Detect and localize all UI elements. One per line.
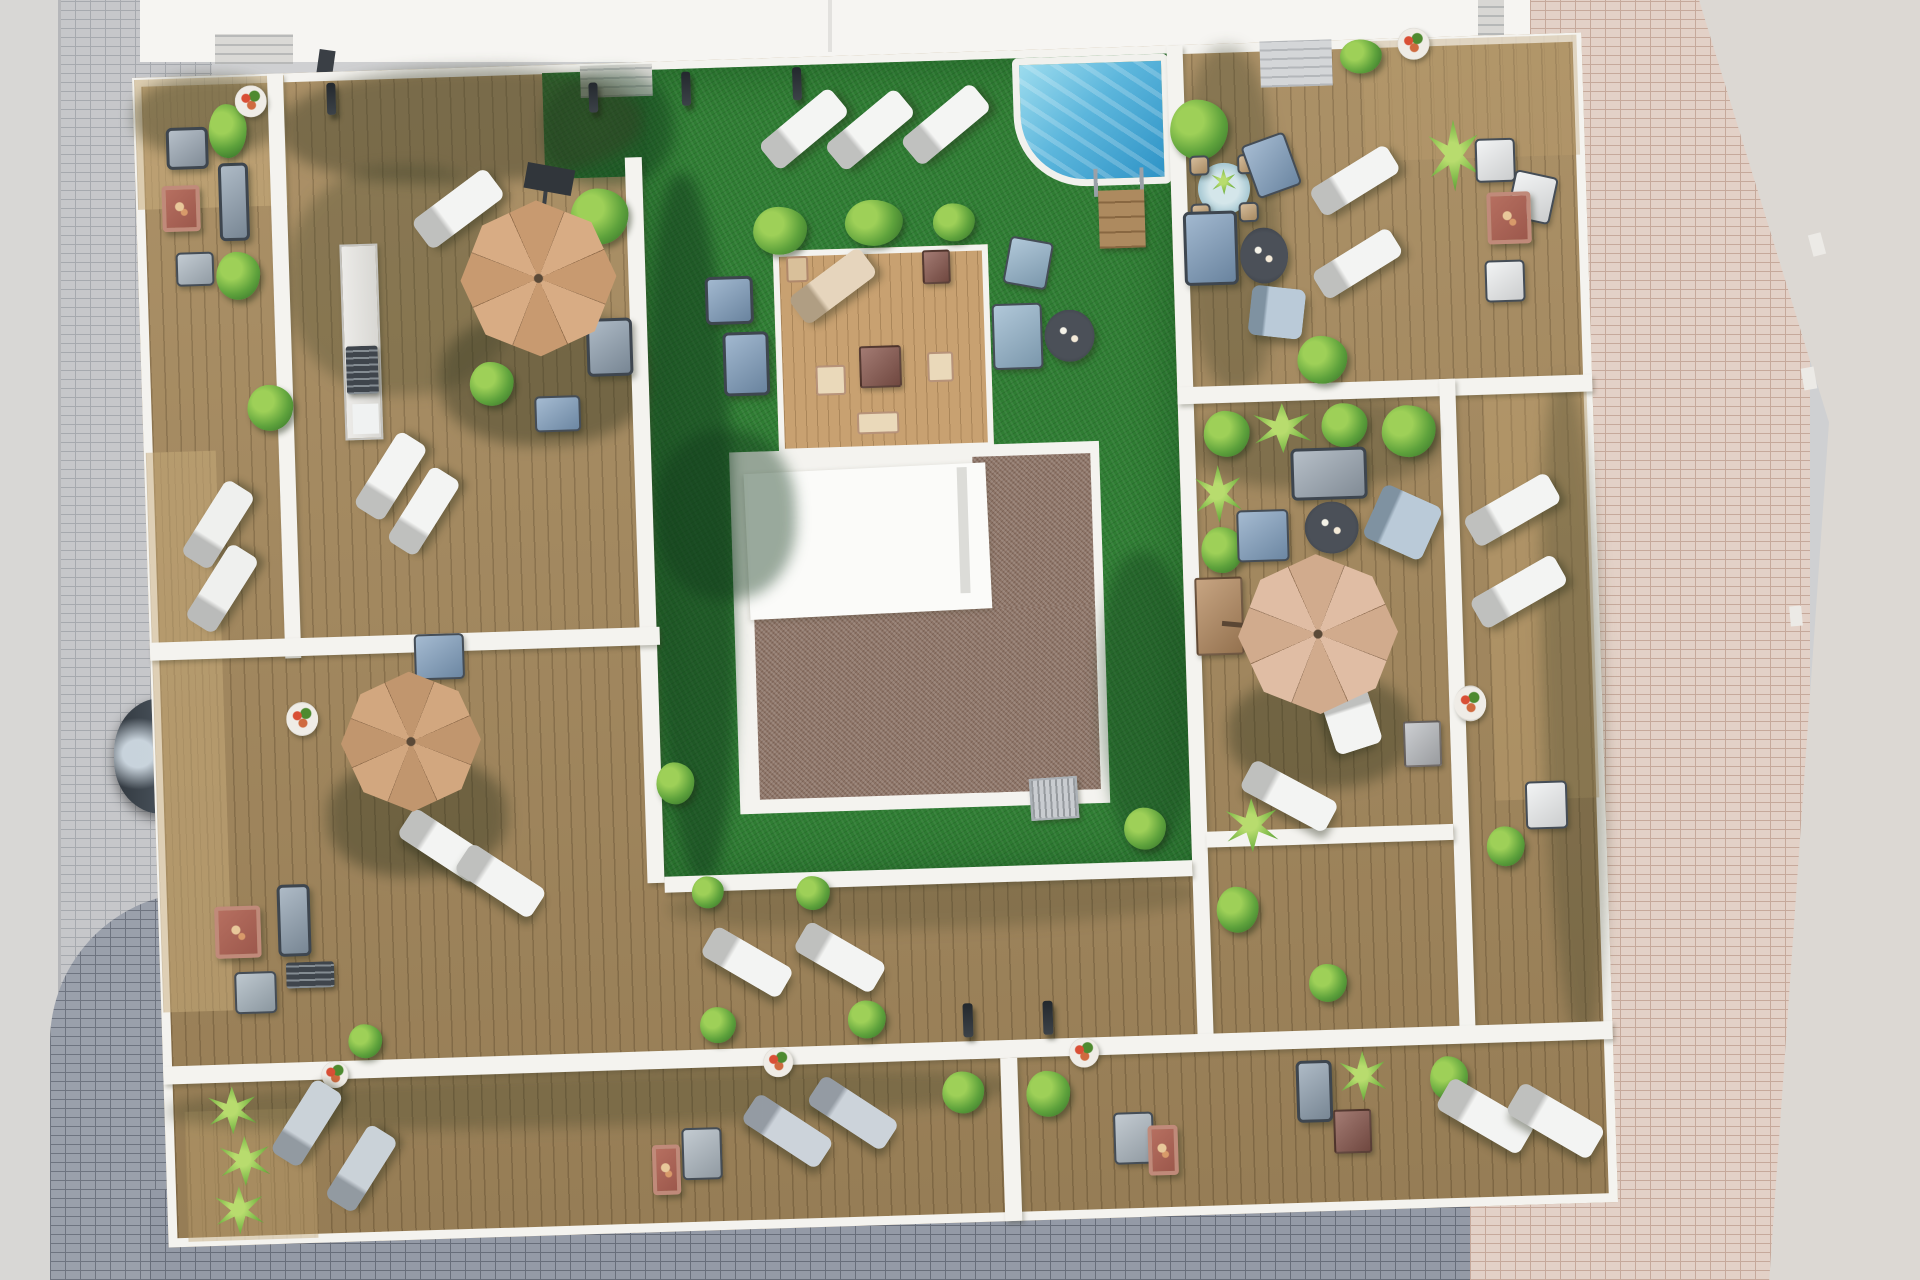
lounge-chair-lawn-1 — [1002, 235, 1054, 290]
bollard-light-lawn-1 — [681, 72, 691, 106]
sofa-nw-vertical — [218, 162, 250, 241]
roof-seam — [828, 0, 832, 52]
ac-unit-core — [1029, 776, 1080, 821]
rooftop-aerial-render — [0, 0, 1920, 1280]
fire-table-bc-left — [652, 1144, 682, 1195]
bollard-light-lawn-2 — [792, 67, 802, 100]
armchair-corner-1 — [1475, 138, 1516, 183]
planter-pergola — [922, 249, 951, 284]
building-layer — [132, 33, 1618, 1248]
sofa-rm — [1290, 446, 1368, 500]
sofa-lawn-1 — [705, 276, 754, 325]
armchair-sw — [414, 633, 465, 681]
armchair-bc-left — [681, 1127, 723, 1180]
fire-table-corner — [1486, 191, 1532, 244]
cushion-pergola-3 — [857, 411, 900, 434]
balcony-ledge-tr — [1259, 39, 1332, 87]
sofa-lawn-2 — [722, 331, 770, 396]
building-rooftop — [132, 33, 1618, 1248]
side-table-br — [1333, 1109, 1372, 1154]
lounge-chair-lawn-2 — [992, 303, 1044, 371]
sofa-sw — [276, 884, 311, 957]
gravel-roof-south — [754, 605, 1101, 800]
fire-table-sw — [214, 905, 262, 958]
roof-ledge-left — [215, 34, 293, 64]
bollard-light-south-1 — [962, 1003, 973, 1037]
umbrella-stand-rm — [1194, 576, 1244, 655]
armchair-east — [1525, 780, 1568, 829]
armchair-sw-2 — [234, 971, 277, 1014]
grill-ul — [346, 345, 379, 394]
side-table-rm — [1403, 720, 1442, 767]
armchair-corner-2 — [1484, 259, 1525, 302]
fire-table-nw — [161, 185, 200, 232]
sofa-br — [1295, 1060, 1333, 1123]
bollard-light-ul-1 — [326, 83, 336, 115]
pool-steps — [1098, 189, 1146, 248]
cushion-pergola-4 — [786, 256, 809, 283]
bollard-light-ul-2 — [588, 82, 598, 112]
cushion-pergola-1 — [815, 365, 846, 396]
curb-stone-right-3 — [1789, 606, 1803, 627]
dining-chair-tr-1 — [1189, 155, 1210, 176]
low-table-pergola — [859, 345, 902, 388]
sink-ul — [352, 403, 379, 434]
armchair-ul — [534, 395, 581, 432]
sofa-tr — [1183, 210, 1239, 286]
fire-table-bc-right — [1147, 1125, 1179, 1176]
grill-sw — [286, 961, 335, 988]
armchair-rm — [1236, 509, 1290, 563]
lounger-tr-blue — [1247, 284, 1306, 340]
sofa-nw-horizontal — [166, 127, 209, 170]
shadow-pergola — [653, 427, 798, 601]
dining-chair-tr-4 — [1238, 202, 1259, 223]
bollard-light-south-2 — [1042, 1001, 1053, 1035]
armchair-nw — [175, 252, 214, 287]
cushion-pergola-2 — [927, 351, 954, 382]
